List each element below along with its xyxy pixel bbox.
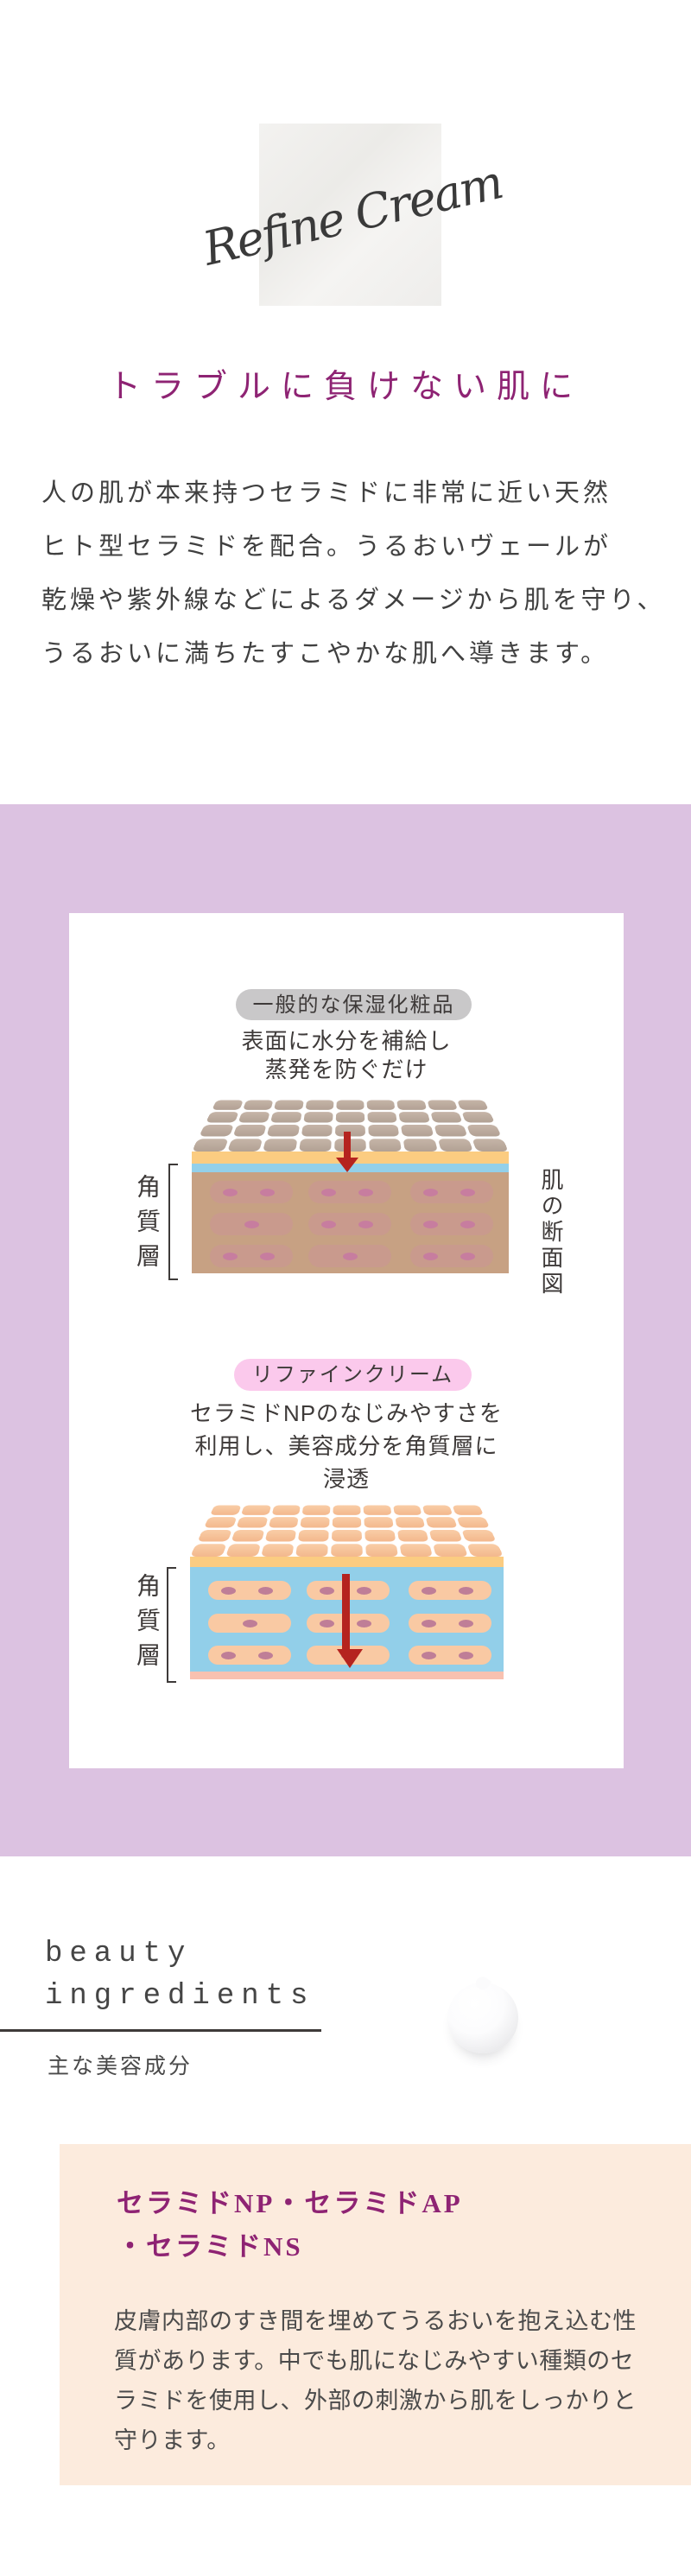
surface-tile	[210, 1506, 241, 1515]
skin-cell	[208, 1581, 291, 1600]
surface-tile	[299, 1139, 332, 1152]
cell-nucleus	[221, 1587, 236, 1595]
surface-tile	[430, 1112, 462, 1122]
ceramide-description-line: ラミドを使用し、外部の刺激から肌をしっかりと	[114, 2381, 637, 2421]
surface-tile	[267, 1125, 300, 1136]
surface-tile	[368, 1125, 399, 1136]
skin-cross-section-label: 肌の断面図	[536, 1168, 567, 1298]
cell-nucleus	[321, 1189, 336, 1196]
cell-nucleus	[423, 1253, 438, 1260]
cell-nucleus	[343, 1253, 358, 1260]
cell-nucleus	[244, 1221, 259, 1228]
section-title-line: ingredients	[45, 1976, 314, 2018]
cell-nucleus	[321, 1221, 336, 1228]
surface-tile	[264, 1530, 296, 1541]
cell-nucleus	[320, 1620, 334, 1627]
surface-tile	[364, 1517, 393, 1527]
cell-nucleus	[243, 1620, 257, 1627]
caption-general: 表面に水分を補給し 蒸発を防ぐだけ	[69, 1027, 624, 1084]
surface-tile	[365, 1530, 396, 1541]
surface-tile	[333, 1506, 360, 1515]
surface-tile	[393, 1506, 422, 1515]
surface-tile	[236, 1517, 268, 1527]
surface-tile	[427, 1101, 458, 1110]
absorption-arrow-head	[336, 1158, 358, 1172]
caption-line: 利用し、美容成分を角質層に	[69, 1430, 624, 1462]
surface-tile	[206, 1112, 239, 1122]
surface-tile	[403, 1139, 438, 1152]
surface-tile	[437, 1139, 472, 1152]
cell-nucleus	[357, 1620, 371, 1627]
surface-tile	[192, 1139, 229, 1152]
surface-tile	[457, 1101, 489, 1110]
surface-tile	[461, 1112, 495, 1122]
skin-cell	[409, 1646, 491, 1665]
surface-tile	[426, 1517, 458, 1527]
cream-dollop-image	[447, 1983, 518, 2053]
skin-surface-grid	[190, 1506, 504, 1557]
cell-nucleus	[460, 1189, 475, 1196]
skin-cell	[208, 1646, 291, 1665]
surface-tile	[395, 1517, 426, 1527]
surface-tile	[399, 1544, 433, 1557]
surface-tile	[227, 1139, 263, 1152]
surface-tile	[331, 1544, 363, 1557]
surface-tile	[263, 1139, 297, 1152]
surface-tile	[429, 1530, 463, 1541]
surface-tile	[363, 1506, 391, 1515]
stratum-corneum-bracket	[167, 1567, 176, 1683]
skin-cross-section-general	[192, 1172, 509, 1273]
ceramide-heading-line: ・セラミドNS	[117, 2225, 463, 2268]
cell-nucleus	[459, 1587, 473, 1595]
cell-nucleus	[258, 1652, 273, 1659]
surface-tile	[333, 1517, 362, 1527]
surface-tile	[336, 1101, 365, 1110]
cell-nucleus	[223, 1253, 238, 1260]
intro-paragraph: 人の肌が本来持つセラミドに非常に近い天然 ヒト型セラミドを配合。うるおいヴェール…	[41, 466, 681, 681]
ceramide-heading-line: セラミドNP・セラミドAP	[117, 2182, 463, 2225]
cell-nucleus	[358, 1221, 373, 1228]
skin-cell	[308, 1181, 391, 1203]
stratum-corneum-bracket	[168, 1164, 178, 1280]
surface-tile	[399, 1112, 430, 1122]
skin-cell	[409, 1581, 491, 1600]
cell-nucleus	[423, 1189, 438, 1196]
caption-line: 表面に水分を補給し	[69, 1027, 624, 1056]
surface-tile	[295, 1544, 328, 1557]
intro-line: 乾燥や紫外線などによるダメージから肌を守り、	[41, 574, 681, 627]
absorption-arrow-stem	[344, 1132, 351, 1158]
surface-tile	[422, 1506, 453, 1515]
surface-tile	[457, 1517, 490, 1527]
ceramide-description-line: 守ります。	[114, 2421, 637, 2460]
surface-tile	[434, 1125, 467, 1136]
dermis-layer	[190, 1672, 504, 1679]
cell-nucleus	[357, 1587, 371, 1595]
ceramide-info-box: セラミドNP・セラミドAP ・セラミドNS 皮膚内部のすき間を埋めてうるおいを抱…	[60, 2144, 691, 2485]
surface-tile	[261, 1544, 295, 1557]
caption-refine: セラミドNPのなじみやすさを 利用し、美容成分を角質層に 浸透	[69, 1397, 624, 1495]
cell-nucleus	[460, 1253, 475, 1260]
intro-line: うるおいに満ちたすこやかな肌へ導きます。	[41, 627, 681, 681]
surface-tile	[204, 1517, 237, 1527]
cell-nucleus	[423, 1221, 438, 1228]
skin-cell	[210, 1181, 293, 1203]
ceramide-description-line: 皮膚内部のすき間を埋めてうるおいを抱え込む性	[114, 2301, 637, 2341]
cell-nucleus	[459, 1652, 473, 1659]
cell-nucleus	[221, 1652, 236, 1659]
skin-cell	[308, 1213, 391, 1235]
caption-line: 蒸発を防ぐだけ	[69, 1056, 624, 1084]
surface-tile	[466, 1125, 502, 1136]
skin-cell	[409, 1614, 491, 1633]
cell-nucleus	[459, 1620, 473, 1627]
surface-tile	[433, 1544, 468, 1557]
surface-tile	[365, 1544, 398, 1557]
badge-refine-cream: リファインクリーム	[234, 1359, 472, 1391]
surface-tile	[241, 1506, 271, 1515]
surface-tile	[231, 1530, 264, 1541]
cell-nucleus	[422, 1652, 436, 1659]
cell-nucleus	[460, 1221, 475, 1228]
section-title-beauty-ingredients: beauty ingredients	[45, 1933, 314, 2018]
stratum-corneum-label: 角質層	[130, 1573, 164, 1677]
surface-tile	[197, 1530, 231, 1541]
cell-nucleus	[320, 1587, 334, 1595]
surface-tile	[453, 1506, 484, 1515]
surface-tile	[303, 1112, 333, 1122]
surface-tile	[472, 1139, 509, 1152]
surface-tile	[270, 1112, 301, 1122]
surface-tile	[274, 1101, 303, 1110]
comparison-card: 一般的な保湿化粧品 表面に水分を補給し 蒸発を防ぐだけ 角質層 肌の断面図 リフ…	[69, 913, 624, 1768]
surface-tile	[332, 1530, 362, 1541]
penetration-arrow-head	[337, 1649, 363, 1668]
surface-tile	[336, 1112, 365, 1122]
section-subtitle: 主な美容成分	[48, 2049, 193, 2080]
surface-tile	[369, 1139, 402, 1152]
skin-cell	[210, 1245, 293, 1267]
stratum-corneum-label: 角質層	[130, 1174, 164, 1278]
ceramide-description: 皮膚内部のすき間を埋めてうるおいを抱え込む性 質があります。中でも肌になじみやす…	[114, 2301, 637, 2460]
skin-cell	[210, 1213, 293, 1235]
surface-tile	[301, 1125, 332, 1136]
surface-tile	[190, 1544, 226, 1557]
surface-tile	[305, 1101, 333, 1110]
cell-nucleus	[260, 1253, 275, 1260]
skin-cell	[410, 1245, 493, 1267]
surface-tile	[212, 1101, 244, 1110]
ceramide-description-line: 質があります。中でも肌になじみやすい種類のセ	[114, 2341, 637, 2381]
intro-line: ヒト型セラミドを配合。うるおいヴェールが	[41, 520, 681, 574]
surface-tile	[268, 1517, 299, 1527]
caption-line: セラミドNPのなじみやすさを	[69, 1397, 624, 1430]
page-title: トラブルに負けない肌に	[0, 359, 691, 407]
skin-cell	[410, 1181, 493, 1203]
section-title-underline	[0, 2029, 321, 2032]
moisture-veil-layer	[190, 1557, 504, 1567]
badge-general-moisturizer: 一般的な保湿化粧品	[236, 989, 472, 1020]
intro-line: 人の肌が本来持つセラミドに非常に近い天然	[41, 466, 681, 520]
surface-tile	[238, 1112, 270, 1122]
surface-tile	[367, 1101, 396, 1110]
surface-tile	[225, 1544, 261, 1557]
cell-nucleus	[422, 1620, 436, 1627]
section-title-line: beauty	[45, 1933, 314, 1976]
cell-nucleus	[258, 1587, 273, 1595]
cell-nucleus	[260, 1189, 275, 1196]
skin-cell	[410, 1213, 493, 1235]
surface-tile	[467, 1544, 504, 1557]
surface-tile	[243, 1101, 274, 1110]
surface-tile	[396, 1101, 426, 1110]
surface-tile	[367, 1112, 397, 1122]
surface-tile	[401, 1125, 434, 1136]
cell-nucleus	[422, 1587, 436, 1595]
surface-tile	[397, 1530, 429, 1541]
surface-tile	[199, 1125, 234, 1136]
surface-tile	[302, 1506, 331, 1515]
surface-tile	[301, 1517, 330, 1527]
surface-tile	[233, 1125, 267, 1136]
surface-tile	[461, 1530, 496, 1541]
surface-tile	[298, 1530, 329, 1541]
skin-cell	[208, 1614, 291, 1633]
cell-nucleus	[358, 1189, 373, 1196]
penetration-arrow-stem	[342, 1574, 350, 1649]
skin-cell	[308, 1245, 391, 1267]
ceramide-heading: セラミドNP・セラミドAP ・セラミドNS	[117, 2182, 463, 2268]
caption-line: 浸透	[69, 1462, 624, 1495]
surface-tile	[271, 1506, 301, 1515]
cell-nucleus	[223, 1189, 238, 1196]
